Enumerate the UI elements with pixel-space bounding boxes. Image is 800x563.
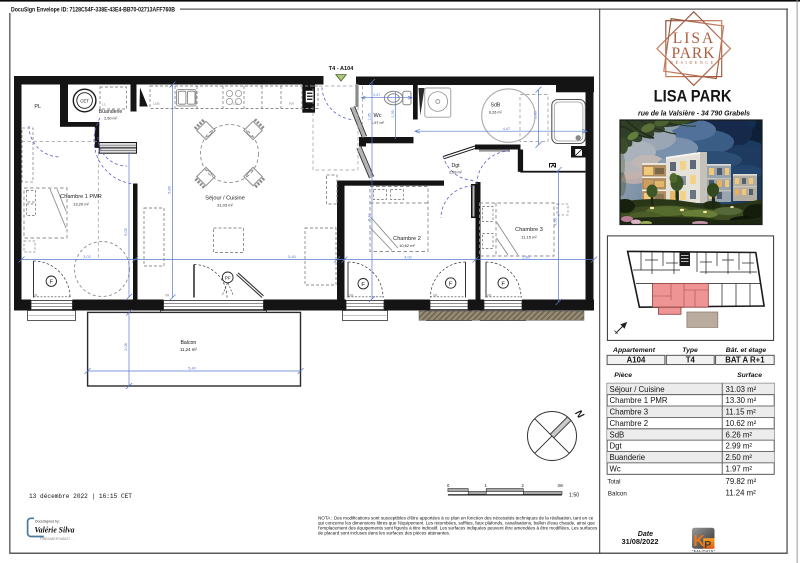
svg-text:Balcon: Balcon [608,490,627,497]
svg-text:Balcon: Balcon [180,340,196,346]
svg-text:T4 - A104: T4 - A104 [329,66,355,72]
svg-text:6,26 m²: 6,26 m² [489,111,503,115]
svg-text:Séjour / Cuisine: Séjour / Cuisine [610,385,665,394]
svg-text:5,40: 5,40 [188,367,195,371]
svg-text:Chambre 3: Chambre 3 [610,408,649,417]
svg-text:T4: T4 [686,356,696,365]
svg-text:13.30 m²: 13.30 m² [726,396,757,405]
svg-text:RÉSIDENCE: RÉSIDENCE [670,60,715,65]
svg-text:4,00: 4,00 [404,256,411,260]
svg-text:11,24 m²: 11,24 m² [180,347,198,352]
svg-text:DocuSigned by:: DocuSigned by: [35,519,60,523]
svg-text:PF: PF [225,276,231,281]
svg-text:Surface: Surface [737,372,762,379]
svg-text:SdB: SdB [610,430,625,439]
svg-text:11.15 m²: 11.15 m² [726,408,757,417]
svg-text:2,50 m²: 2,50 m² [104,117,118,121]
svg-text:DocuSign Envelope ID: 7128C54F: DocuSign Envelope ID: 7128C54F-338E-43E4… [11,7,175,14]
svg-text:Total: Total [607,479,620,486]
svg-text:1,97 m²: 1,97 m² [371,121,385,125]
svg-text:SdB: SdB [490,103,500,109]
svg-text:Chambre 2: Chambre 2 [393,236,421,242]
svg-text:Chambre 1 PMR: Chambre 1 PMR [60,194,102,200]
svg-text:Dgt: Dgt [451,163,460,169]
svg-text:31,03 m²: 31,03 m² [217,203,233,208]
svg-text:2.99 m²: 2.99 m² [726,442,753,451]
svg-text:CU: CU [233,102,239,106]
svg-text:3,02: 3,02 [83,255,90,259]
svg-text:10,62 m²: 10,62 m² [399,243,415,248]
svg-text:Bât. et étage: Bât. et étage [726,347,767,354]
svg-text:Valérie Silva: Valérie Silva [35,525,76,535]
svg-text:1:50: 1:50 [569,493,579,499]
svg-text:Wc: Wc [610,464,621,473]
svg-text:1,47: 1,47 [373,93,380,97]
svg-text:2.50 m²: 2.50 m² [726,453,753,462]
svg-text:1,35: 1,35 [391,110,395,117]
svg-text:F: F [50,280,54,286]
svg-text:13,20 m²: 13,20 m² [73,202,89,207]
svg-text:2,08: 2,08 [124,343,128,350]
svg-text:Buanderie: Buanderie [99,109,123,115]
svg-text:5,05: 5,05 [124,228,128,235]
svg-text:2,99 m²: 2,99 m² [449,171,463,175]
svg-text:31.03 m²: 31.03 m² [726,385,757,394]
svg-text:CET: CET [80,98,89,103]
svg-text:Pièce: Pièce [614,372,632,379]
svg-text:4,47: 4,47 [503,127,510,131]
svg-text:10.62 m²: 10.62 m² [726,419,757,428]
svg-text:Type: Type [682,347,698,354]
svg-text:VR: VR [349,294,354,298]
svg-text:BAT A R+1: BAT A R+1 [725,356,765,365]
svg-text:Wc: Wc [373,113,381,119]
svg-text:LVE: LVE [153,102,160,106]
svg-text:Dgt: Dgt [610,442,623,451]
svg-text:Chambre 1 PMR: Chambre 1 PMR [610,396,668,405]
svg-text:11,15 m²: 11,15 m² [521,235,537,240]
svg-text:de placard sont incluses dans: de placard sont incluses dans les surfac… [318,531,450,536]
svg-text:VR: VR [165,294,170,298]
svg-text:11.24 m²: 11.24 m² [726,489,757,498]
svg-text:3m: 3m [558,483,564,488]
svg-text:1.97 m²: 1.97 m² [726,464,753,473]
svg-text:* K A L I T H Y S *: * K A L I T H Y S * [692,549,716,553]
svg-text:F: F [449,281,453,287]
svg-text:1,93: 1,93 [533,111,537,118]
svg-text:LL: LL [102,103,106,107]
svg-text:rue de la Valsière - 34 790 Gr: rue de la Valsière - 34 790 Grabels [638,109,750,118]
svg-text:31/08/2022: 31/08/2022 [622,537,659,546]
svg-text:VR: VR [33,294,38,298]
svg-text:5,41: 5,41 [368,213,372,220]
svg-text:2,80: 2,80 [522,256,529,260]
svg-text:VR: VR [487,294,492,298]
svg-text:6.26 m²: 6.26 m² [726,430,753,439]
svg-text:5,40: 5,40 [288,255,295,259]
svg-text:79.82 m²: 79.82 m² [726,477,757,486]
svg-text:F98FAA8E3F54B427...: F98FAA8E3F54B427... [40,537,73,541]
svg-text:F: F [501,281,505,287]
svg-text:1,35: 1,35 [368,113,372,120]
svg-text:VR: VR [433,294,438,298]
svg-text:Séjour / Cuisine: Séjour / Cuisine [205,196,245,202]
svg-text:5,86: 5,86 [168,186,172,193]
svg-text:13 décembre 2022 | 16:15 CET: 13 décembre 2022 | 16:15 CET [29,493,132,501]
svg-text:A104: A104 [627,356,646,365]
svg-text:Chambre 2: Chambre 2 [610,419,649,428]
svg-text:Chambre 3: Chambre 3 [515,227,543,233]
svg-text:LISA PARK: LISA PARK [654,87,733,106]
svg-text:PL: PL [34,104,41,110]
svg-text:FR: FR [289,102,294,106]
svg-text:Buanderie: Buanderie [610,453,646,462]
svg-text:4,56: 4,56 [554,218,558,225]
svg-text:F: F [361,282,365,288]
svg-text:Appartement: Appartement [612,347,656,354]
